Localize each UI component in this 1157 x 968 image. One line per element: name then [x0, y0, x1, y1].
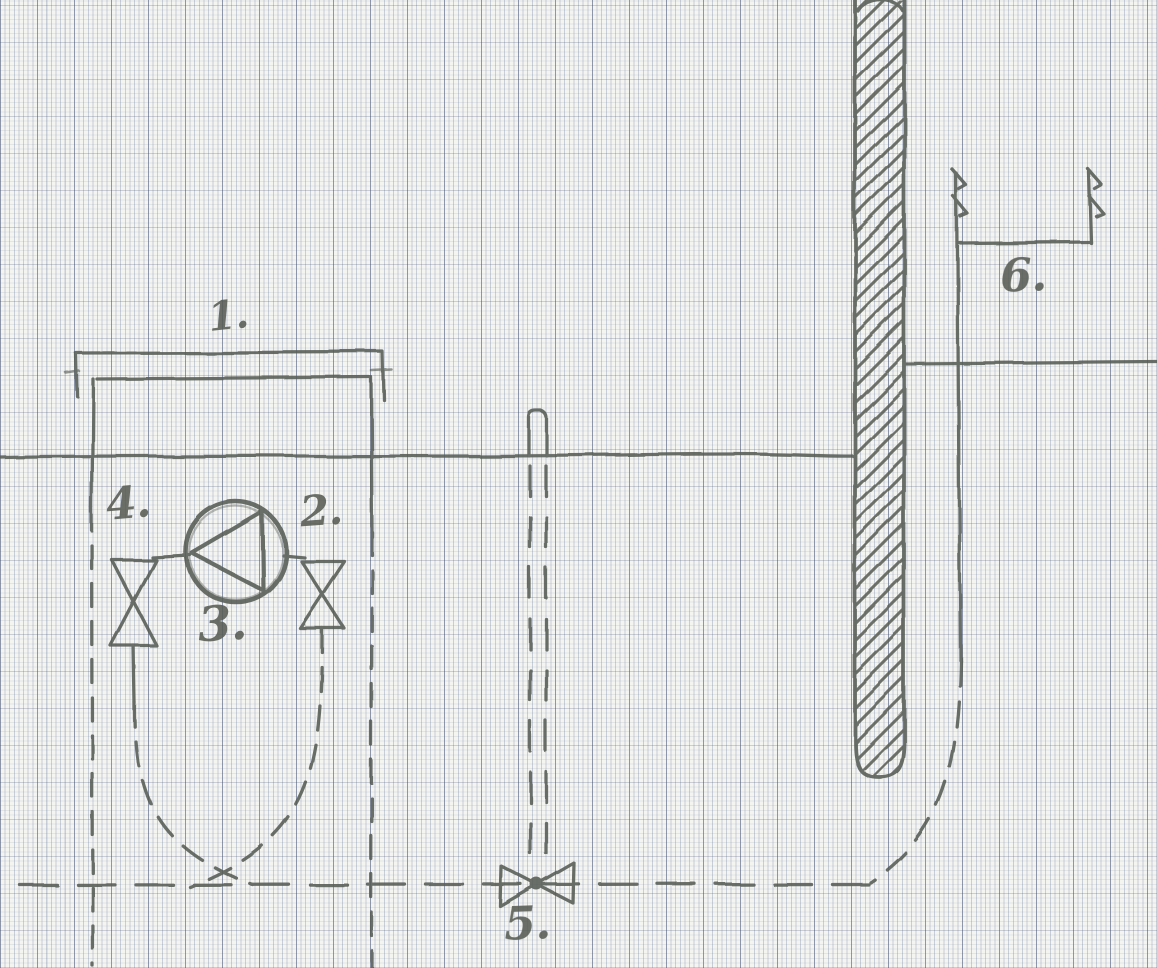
callout-6: 6. [999, 251, 1047, 299]
riser-top-stub [529, 411, 547, 456]
suction-pipe-left-dashed [135, 703, 253, 885]
ground-line-left [0, 454, 855, 457]
callout-2: 2. [299, 489, 344, 534]
outlet-riser-right [1089, 172, 1091, 243]
pipe-pump-left [152, 555, 190, 557]
tank-wall-left-solid [92, 379, 93, 508]
suction-pipe-right-dashed [190, 628, 322, 887]
callout-1: 1. [206, 294, 250, 338]
ground-line-right [905, 362, 1157, 364]
gate-valve-left-tail [134, 646, 135, 703]
suction-level-dashed-line [20, 884, 868, 885]
gate-valve-left-icon [111, 560, 157, 646]
sketch-strokes [0, 0, 1157, 966]
tank-inner-cap [97, 377, 369, 379]
pipe-pump-right [283, 555, 304, 557]
gate-valve-right-icon [300, 561, 344, 628]
tank-wall-right-solid [371, 377, 372, 532]
callout-4: 4. [104, 480, 152, 528]
graph-paper-sheet: 1. 2. 3. 4. 5. 6. [0, 0, 1157, 968]
pencil-drawing [0, 0, 1157, 968]
pump-icon [186, 502, 286, 602]
tank-outer-cap-feet [66, 370, 392, 373]
tank-wall-right-dashed [371, 532, 372, 966]
outlet-drop-solid [957, 174, 960, 660]
outlet-connector [960, 242, 1091, 243]
callout-5: 5. [503, 899, 551, 947]
well-casing-hatch-fill [855, 0, 904, 777]
callout-3: 3. [197, 599, 248, 649]
tank-wall-left-dashed [92, 508, 93, 966]
flow-arrow-left-icon [953, 170, 968, 217]
